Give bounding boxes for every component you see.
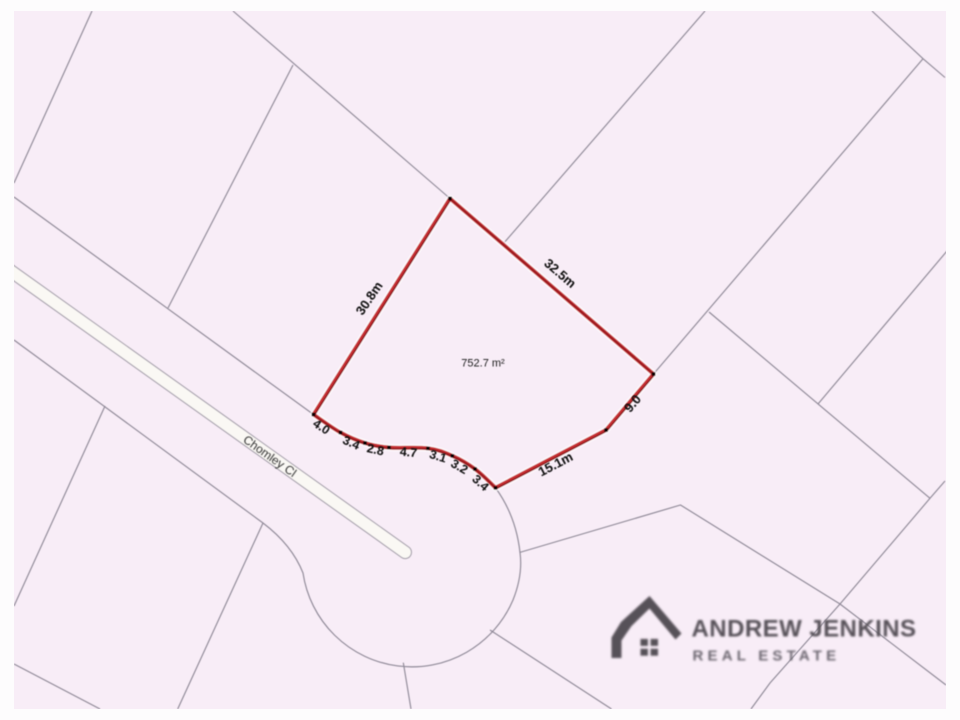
svg-text:REAL ESTATE: REAL ESTATE (693, 648, 841, 665)
svg-text:ANDREW JENKINS: ANDREW JENKINS (692, 616, 917, 643)
svg-text:752.7 m²: 752.7 m² (461, 357, 505, 369)
svg-text:4.7: 4.7 (399, 445, 418, 461)
